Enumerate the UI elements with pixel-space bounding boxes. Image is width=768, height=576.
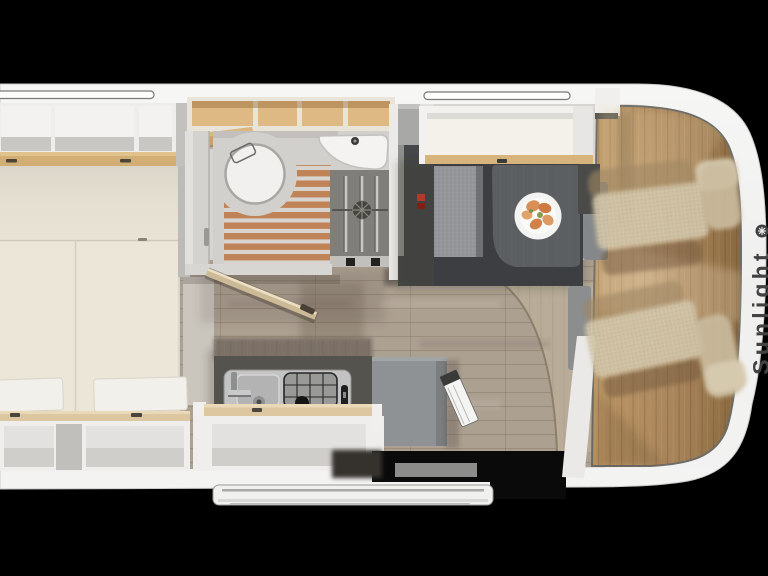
svg-text:Sunlight: Sunlight [748,249,768,375]
